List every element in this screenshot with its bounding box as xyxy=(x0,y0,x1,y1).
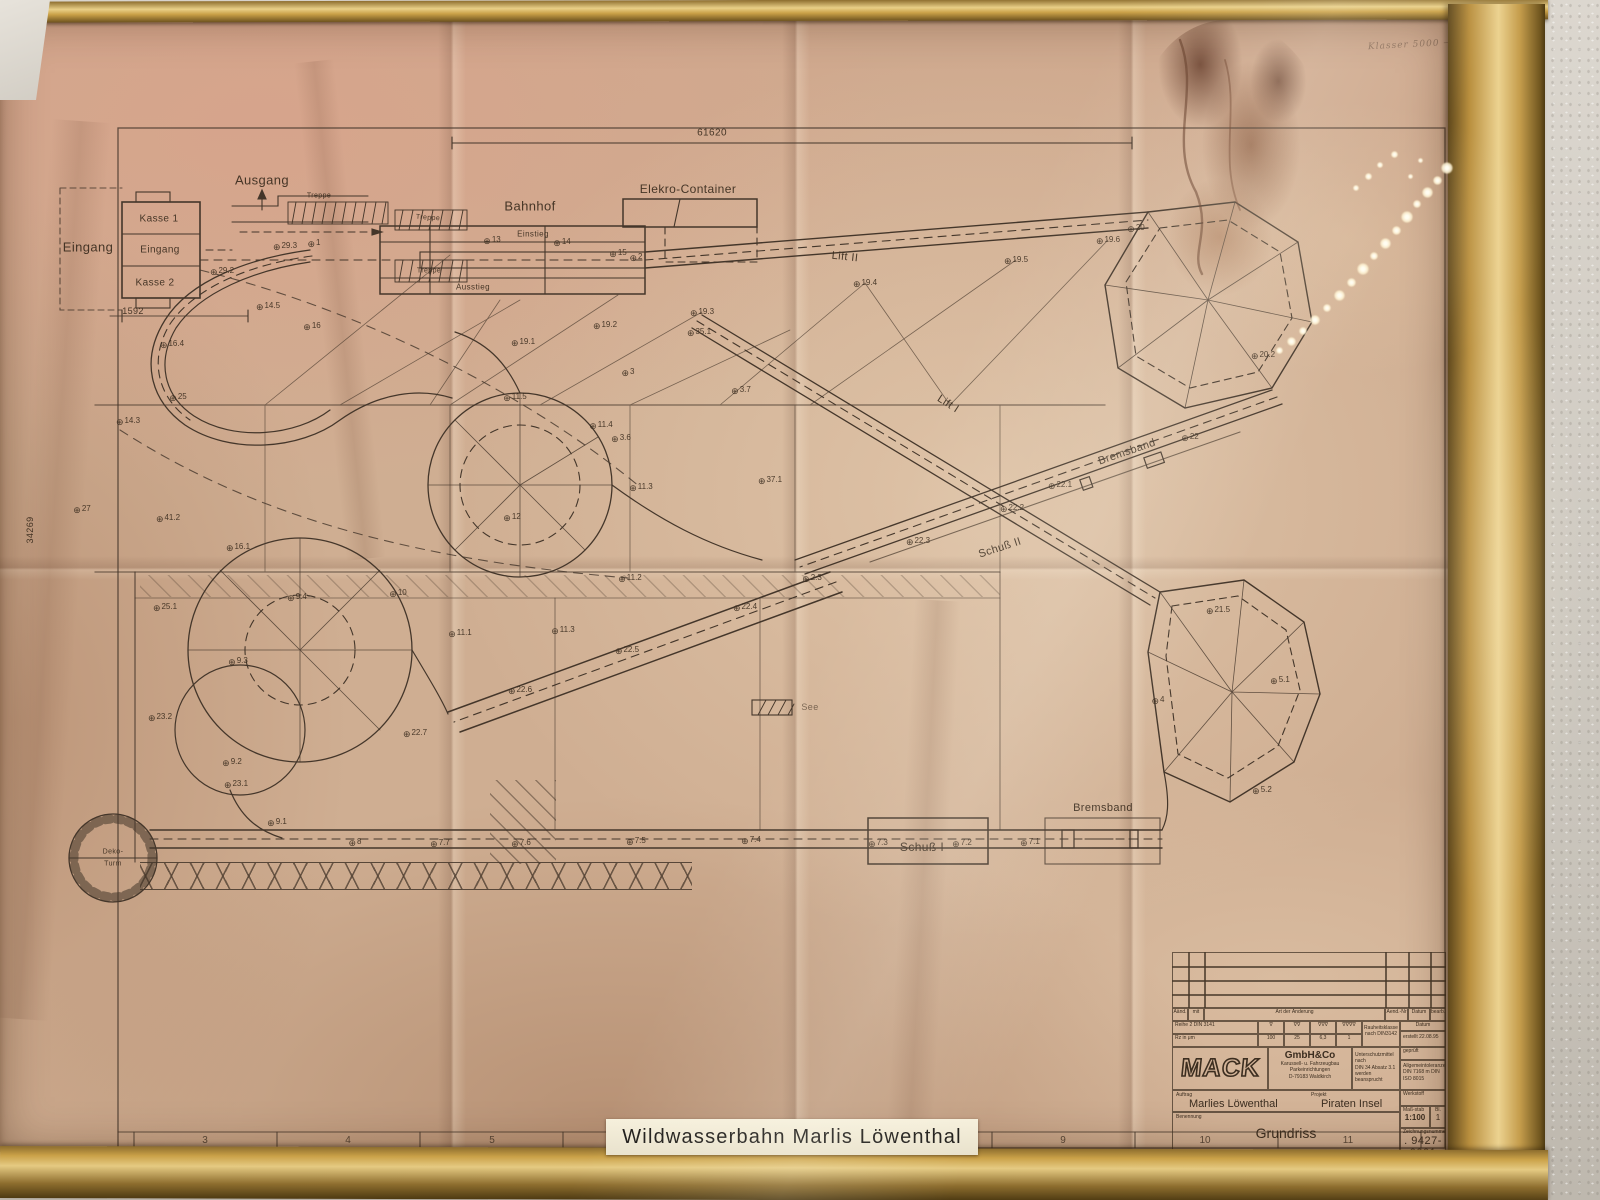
track-point: ⊕20 xyxy=(1127,219,1144,237)
track-point: ⊕9.1 xyxy=(267,813,287,831)
label-elekro-container: Elekro-Container xyxy=(640,182,736,196)
track-point: ⊕11.5 xyxy=(503,388,527,406)
track-point: ⊕22.6 xyxy=(508,681,532,699)
label-treppe-1: Treppe xyxy=(307,193,331,200)
track-point: ⊕29.3 xyxy=(273,237,297,255)
rev-col-mit: mit xyxy=(1188,1008,1204,1021)
track-point: ⊕19.4 xyxy=(853,274,877,292)
track-point: ⊕29.2 xyxy=(210,262,234,280)
track-point: ⊕22.5 xyxy=(615,641,639,659)
track-point: ⊕35.1 xyxy=(687,323,711,341)
label-ausstieg: Ausstieg xyxy=(456,283,490,292)
nabla-4: ∇∇∇∇ xyxy=(1336,1021,1362,1034)
track-point: ⊕25 xyxy=(169,388,186,406)
track-point: ⊕7.3 xyxy=(868,834,888,852)
track-point: ⊕3.7 xyxy=(731,381,751,399)
tb-massstab: Maß-stab 1:100 xyxy=(1400,1106,1430,1128)
track-point: ⊕16.4 xyxy=(160,335,184,353)
track-point: ⊕22.1 xyxy=(1048,476,1072,494)
schutz-cell: Unterschutzmittel nach DIN 34 Absatz 3.1… xyxy=(1352,1047,1400,1090)
track-point: ⊕11.2 xyxy=(618,569,642,587)
grid-number: 3 xyxy=(202,1135,208,1146)
track-point: ⊕14.3 xyxy=(116,412,140,430)
auftrag-projekt-cell: Auftrag Marlies Löwenthal Projekt Pirate… xyxy=(1172,1090,1400,1112)
track-point: ⊕22.4 xyxy=(733,598,757,616)
grid-number: 9 xyxy=(1060,1135,1066,1146)
label-dim-height: 34269 xyxy=(25,516,35,543)
track-point: ⊕20.2 xyxy=(1251,346,1275,364)
track-point: ⊕41.2 xyxy=(156,509,180,527)
nabla-3: ∇∇∇ xyxy=(1310,1021,1336,1034)
framed-blueprint-photo: Eingang Kasse 1 Eingang Kasse 2 1592 Aus… xyxy=(0,0,1600,1200)
track-point: ⊕9.2 xyxy=(222,753,242,771)
grid-number: 5 xyxy=(489,1135,495,1146)
track-point: ⊕5.2 xyxy=(1252,781,1272,799)
track-point: ⊕7.4 xyxy=(741,831,761,849)
track-point: ⊕19.5 xyxy=(1004,251,1028,269)
label-kasse-1: Kasse 1 xyxy=(140,214,179,225)
track-point: ⊕23.1 xyxy=(224,775,248,793)
track-point: ⊕10 xyxy=(389,584,406,602)
tb-erstellt: erstellt 22.08.95 xyxy=(1400,1031,1446,1047)
rev-col-bearb: bearb. xyxy=(1430,1008,1446,1021)
label-eingang-outer: Eingang xyxy=(63,240,114,255)
label-kasse-2: Kasse 2 xyxy=(136,278,175,289)
projekt-value: Piraten Insel xyxy=(1321,1098,1382,1110)
label-deko-turm-2: Turm xyxy=(104,861,122,868)
label-dim-width: 61620 xyxy=(697,128,727,139)
track-point: ⊕11.4 xyxy=(589,416,613,434)
rev-col-nr: Aend.-Nr xyxy=(1385,1008,1408,1021)
tb-zeichnungsnummer: Zeichnungsnummer . 9427-0001 xyxy=(1400,1128,1446,1152)
track-point: ⊕13 xyxy=(483,231,500,249)
track-point: ⊕11.3 xyxy=(551,621,575,639)
label-deko-turm-1: Deko- xyxy=(103,849,124,856)
track-point: ⊕19.6 xyxy=(1096,231,1120,249)
track-point: ⊕11.3 xyxy=(629,478,653,496)
nabla-1: ∇ xyxy=(1258,1021,1284,1034)
track-point: ⊕19.3 xyxy=(690,303,714,321)
track-point: ⊕22 xyxy=(1181,428,1198,446)
label-einstieg: Einstieg xyxy=(517,230,549,239)
tb-datum: Datum xyxy=(1400,1021,1446,1031)
track-point: ⊕21.5 xyxy=(1206,601,1230,619)
track-point: ⊕19.2 xyxy=(593,316,617,334)
track-point: ⊕9.4 xyxy=(287,588,307,606)
mack-company-cell: GmbH&Co Karussell- u. Fahrzeugbau Parkei… xyxy=(1268,1047,1352,1090)
tb-geprueft: geprüft xyxy=(1400,1047,1446,1060)
rz-63: 6,3 xyxy=(1310,1034,1336,1047)
hatch-band xyxy=(140,575,1000,597)
mack-logo-cell: MACK xyxy=(1172,1047,1268,1090)
nabla-2: ∇∇ xyxy=(1284,1021,1310,1034)
title-block: Aänd. mit Art der Änderung Aend.-Nr Datu… xyxy=(1172,952,1446,1152)
track-point: ⊕5.1 xyxy=(1270,671,1290,689)
track-point: ⊕16.1 xyxy=(226,538,250,556)
track-point: ⊕25.1 xyxy=(153,598,177,616)
track-point: ⊕15 xyxy=(609,244,626,262)
track-point: ⊕14 xyxy=(553,233,570,251)
benennung-cell: Benennung Grundriss xyxy=(1172,1112,1400,1152)
auftrag-value: Marlies Löwenthal xyxy=(1189,1098,1278,1110)
tb-toleranzen: AllgemeintoleranzenDIN 7168 m DIN ISO 80… xyxy=(1400,1060,1446,1090)
track-point: ⊕37.1 xyxy=(758,471,782,489)
track-point: ⊕22.3 xyxy=(906,532,930,550)
track-point: ⊕1 xyxy=(308,234,321,252)
rev-col-datum: Datum xyxy=(1408,1008,1430,1021)
surface-rauheit: Rauheitsklasse nach DIN3142 xyxy=(1362,1021,1400,1047)
track-point: ⊕9.3 xyxy=(228,652,248,670)
track-point: ⊕22.7 xyxy=(403,724,427,742)
track-point: ⊕27 xyxy=(73,500,90,518)
track-point: ⊕23.2 xyxy=(148,708,172,726)
track-point: ⊕7.6 xyxy=(511,834,531,852)
track-point: ⊕8 xyxy=(349,833,362,851)
track-point: ⊕7.5 xyxy=(626,832,646,850)
track-point: ⊕12 xyxy=(503,508,520,526)
surface-reihe: Reihe 2 DIN 3141 xyxy=(1172,1021,1258,1034)
benennung-value: Grundriss xyxy=(1256,1125,1317,1141)
label-dim-1592: 1592 xyxy=(122,306,144,316)
track-point: ⊕7.1 xyxy=(1020,833,1040,851)
track-point: ⊕3 xyxy=(622,363,635,381)
label-treppe-3: Treppe xyxy=(417,268,441,275)
track-point: ⊕7.7 xyxy=(430,834,450,852)
label-bremsband-lower: Bremsband xyxy=(1073,802,1133,814)
track-point: ⊕16 xyxy=(303,317,320,335)
tb-werkstoff: Werkstoff xyxy=(1400,1090,1446,1106)
label-schuss-1: Schuß I xyxy=(900,840,944,854)
rev-col-art: Art der Änderung xyxy=(1204,1008,1385,1021)
truss-strip xyxy=(140,862,692,890)
rz-25: 25 xyxy=(1284,1034,1310,1047)
track-point: ⊕2.3 xyxy=(802,569,822,587)
track-point: ⊕22.2 xyxy=(1000,499,1024,517)
name-plate-text: Wildwasserbahn Marlis Löwenthal xyxy=(622,1126,962,1149)
track-point: ⊕14.5 xyxy=(256,297,280,315)
label-see-legend: See xyxy=(801,702,818,712)
track-point: ⊕2 xyxy=(630,248,643,266)
track-point: ⊕3.6 xyxy=(611,429,631,447)
mack-logo: MACK xyxy=(1179,1054,1261,1083)
track-point: ⊕4 xyxy=(1152,691,1165,709)
rev-col-aend: Aänd. xyxy=(1172,1008,1188,1021)
frame-right-bar xyxy=(1448,4,1545,1164)
frame-top-bar xyxy=(34,0,1548,23)
tb-blatt: Bl. 1 xyxy=(1430,1106,1446,1128)
track-point: ⊕19.1 xyxy=(511,333,535,351)
rz-1: 1 xyxy=(1336,1034,1362,1047)
surface-rz: Rz in μm xyxy=(1172,1034,1258,1047)
label-bahnhof: Bahnhof xyxy=(504,199,555,214)
track-point: ⊕7.2 xyxy=(952,834,972,852)
track-point: ⊕11.1 xyxy=(448,624,472,642)
label-eingang-inner: Eingang xyxy=(140,245,180,256)
rz-100: 100 xyxy=(1258,1034,1284,1047)
grid-number: 4 xyxy=(345,1135,351,1146)
name-plate: Wildwasserbahn Marlis Löwenthal xyxy=(606,1119,978,1155)
label-ausgang: Ausgang xyxy=(235,173,289,188)
